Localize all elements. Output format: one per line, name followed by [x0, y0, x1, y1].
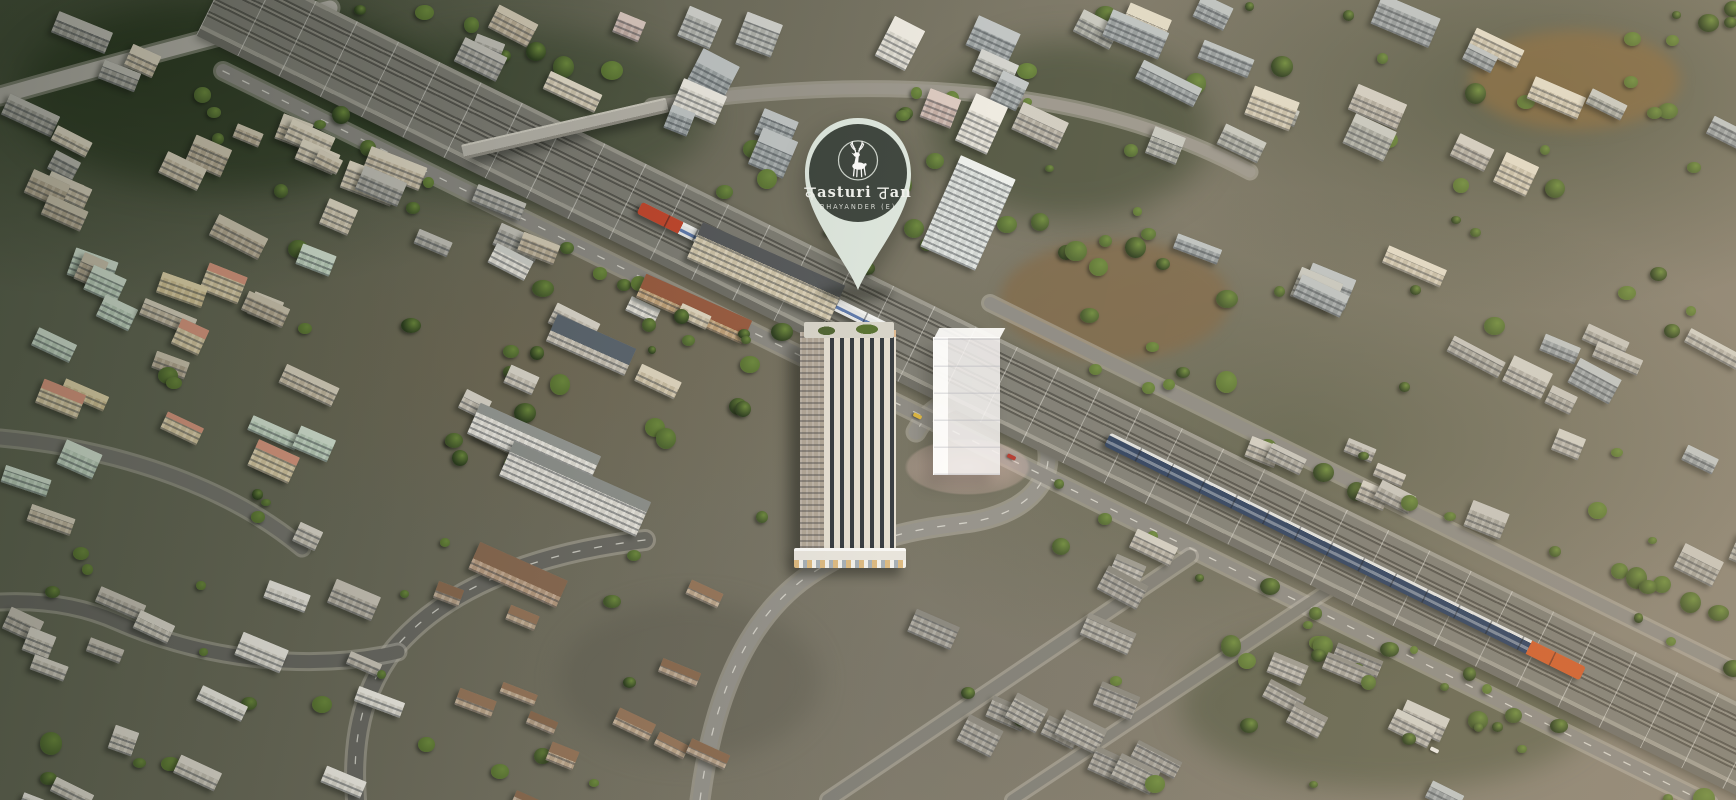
- brand-badge: asturi an BHAYANDER (E): [809, 124, 907, 222]
- car: [1007, 453, 1017, 461]
- brand-subtitle: BHAYANDER (E): [820, 203, 896, 211]
- brand-wordmark: asturi an: [804, 186, 912, 201]
- aerial-city-render: asturi an BHAYANDER (E): [0, 0, 1736, 800]
- brand-latin-mid: asturi: [817, 186, 872, 201]
- brand-latin-end: an: [890, 186, 912, 201]
- deer-icon: [832, 136, 884, 188]
- car: [913, 412, 923, 420]
- devanagari-ka-glyph: [804, 186, 816, 201]
- car: [1430, 746, 1440, 754]
- devanagari-va-glyph: [877, 186, 889, 201]
- deer-antlers: [851, 141, 864, 152]
- location-pin[interactable]: asturi an BHAYANDER (E): [795, 112, 921, 294]
